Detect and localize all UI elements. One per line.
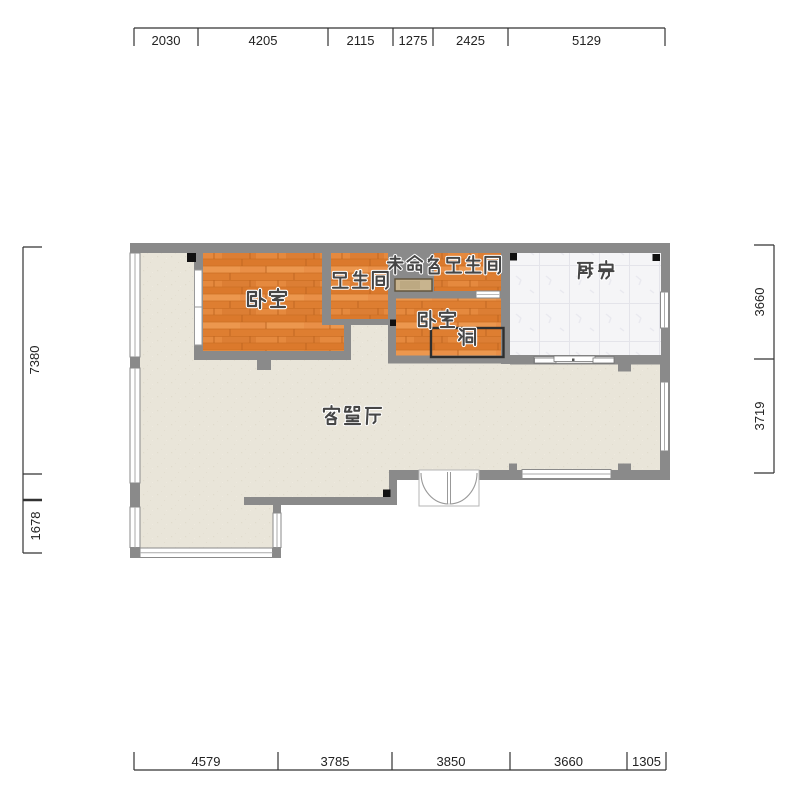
svg-text:2030: 2030 bbox=[152, 33, 181, 48]
svg-text:4579: 4579 bbox=[192, 754, 221, 769]
svg-text:3660: 3660 bbox=[752, 288, 767, 317]
svg-text:5129: 5129 bbox=[572, 33, 601, 48]
svg-text:2115: 2115 bbox=[347, 33, 375, 48]
svg-text:3850: 3850 bbox=[437, 754, 466, 769]
svg-text:1678: 1678 bbox=[28, 512, 43, 541]
svg-text:3785: 3785 bbox=[321, 754, 350, 769]
svg-text:4205: 4205 bbox=[249, 33, 278, 48]
svg-text:1275: 1275 bbox=[399, 33, 428, 48]
svg-text:7380: 7380 bbox=[27, 346, 42, 375]
svg-text:2425: 2425 bbox=[456, 33, 485, 48]
svg-text:3660: 3660 bbox=[554, 754, 583, 769]
svg-text:3719: 3719 bbox=[752, 402, 767, 431]
svg-text:1305: 1305 bbox=[632, 754, 661, 769]
